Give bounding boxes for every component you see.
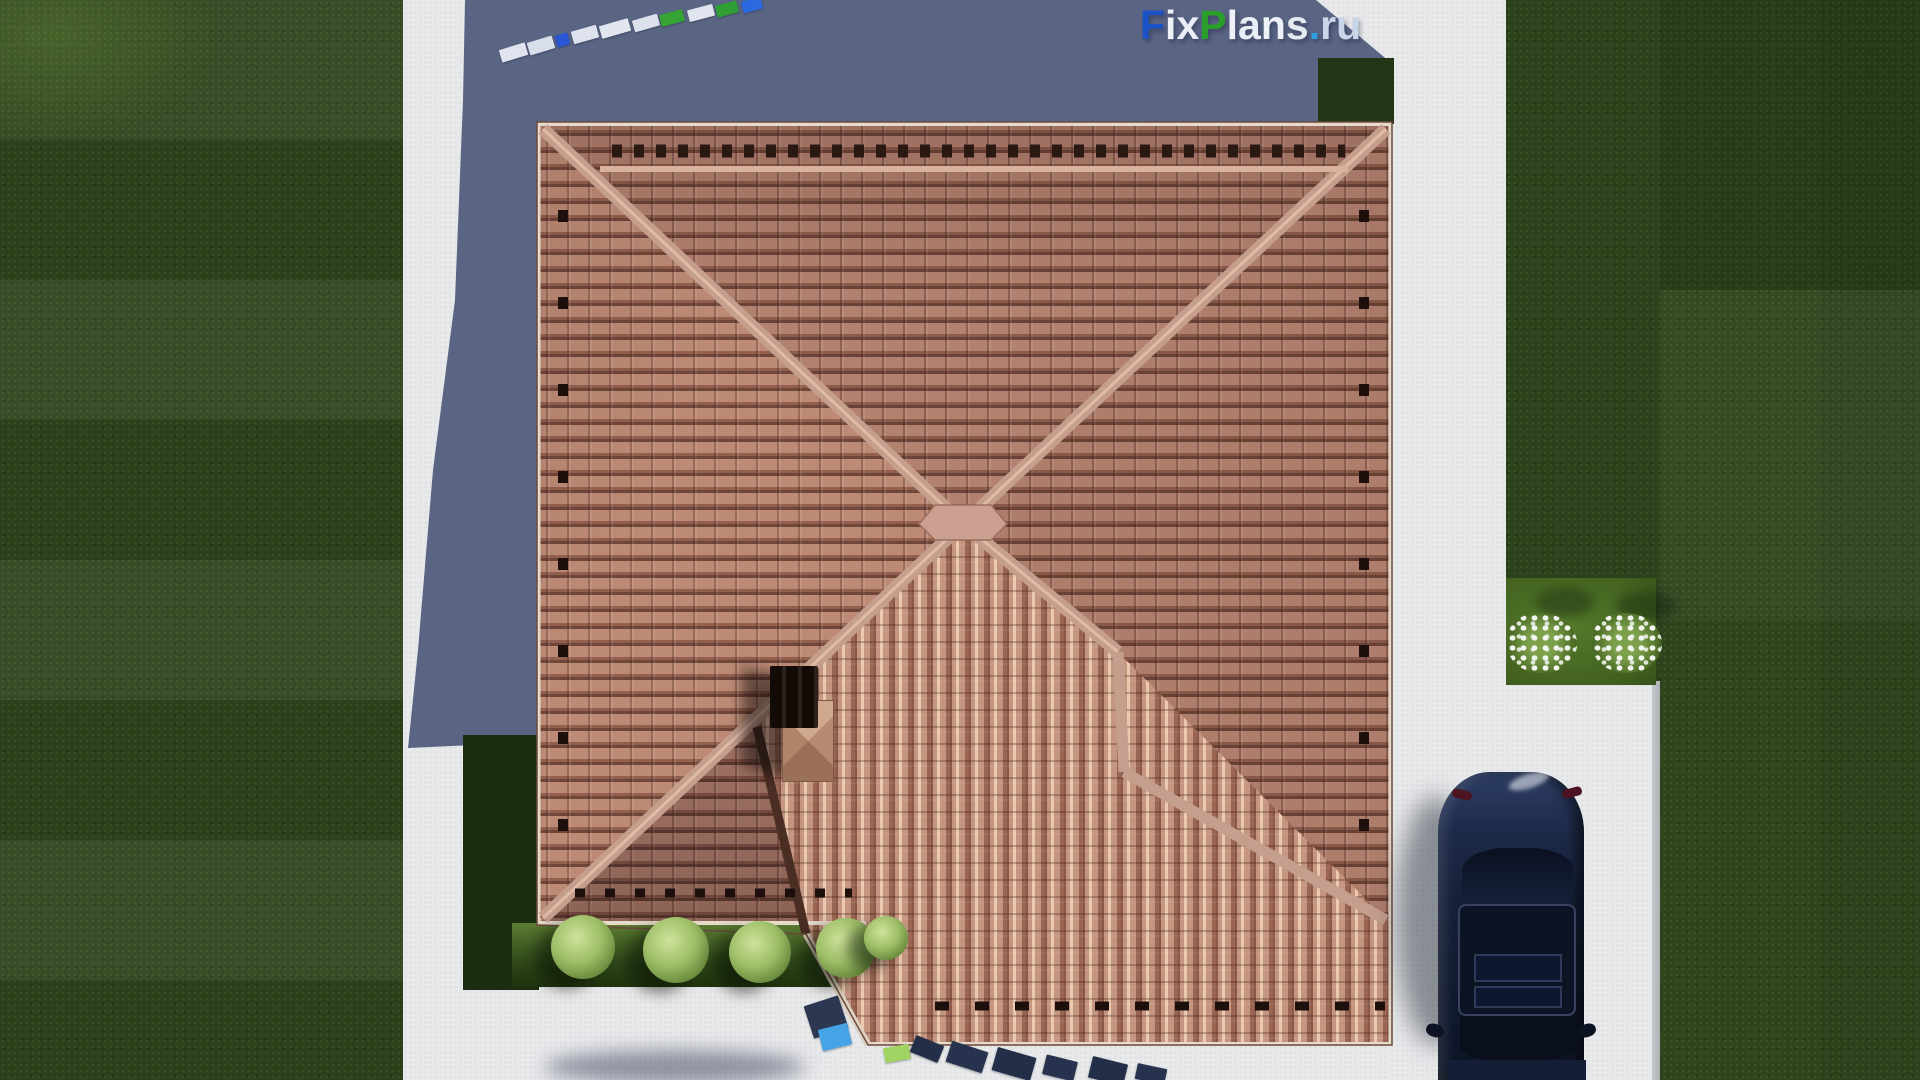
watermark-letter-piece (1042, 1054, 1078, 1080)
car-hood (1448, 1060, 1586, 1080)
logo-letter: x (1176, 2, 1199, 48)
car-body (1438, 772, 1584, 1080)
car-sunroof (1474, 986, 1562, 1008)
logo-letter: s (1286, 2, 1309, 48)
logo-letter: . (1309, 2, 1320, 48)
car-taillight-left (1451, 788, 1473, 802)
car-windshield (1460, 1016, 1576, 1060)
car-taillight-right (1561, 786, 1583, 800)
aerial-house-render: FixPlans.ru (0, 0, 1920, 1080)
car-reflection (1507, 768, 1551, 794)
watermark-letter-piece (946, 1041, 989, 1074)
car-roof-glass (1458, 904, 1576, 1016)
logo-letter: F (1140, 2, 1165, 48)
watermark-3d-letters-bottom (0, 0, 1920, 1080)
watermark-letter-piece (883, 1044, 911, 1063)
logo-letter: l (1227, 2, 1238, 48)
car-rear-window (1462, 848, 1574, 904)
logo-letter: i (1165, 2, 1176, 48)
logo-letter: a (1238, 2, 1261, 48)
logo-letter: P (1199, 2, 1226, 48)
watermark-shadow-smudge (545, 1050, 805, 1080)
watermark-letter-piece (1088, 1056, 1128, 1080)
logo-letter: u (1336, 2, 1361, 48)
site-logo: FixPlans.ru (1140, 2, 1361, 50)
car-sunroof (1474, 954, 1562, 982)
watermark-letter-piece (910, 1035, 945, 1063)
logo-letter: n (1261, 2, 1286, 48)
logo-letter: r (1320, 2, 1336, 48)
parked-car (1432, 766, 1592, 1080)
watermark-letter-piece (1135, 1063, 1168, 1080)
watermark-letter-piece (991, 1047, 1036, 1080)
